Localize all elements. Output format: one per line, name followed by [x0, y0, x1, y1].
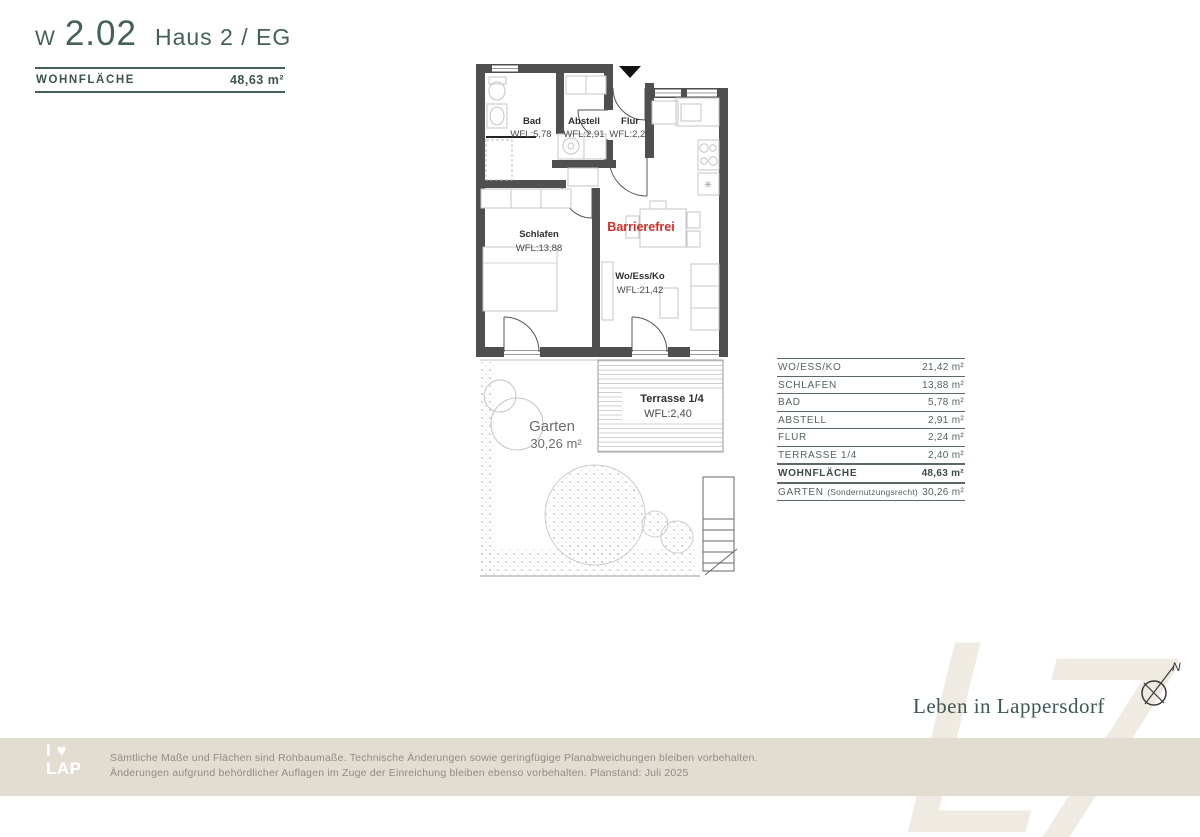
- area-table-row: WO/ESS/KO 21,42 m²: [777, 359, 965, 377]
- logo-line2: LAP: [46, 760, 82, 778]
- unit-prefix: W: [35, 27, 56, 51]
- stairs-icon: [703, 477, 737, 575]
- freezer-symbol: ✳: [704, 180, 712, 191]
- page: W 2.02 Haus 2 / EG WOHNFLÄCHE 48,63 m²: [0, 0, 1200, 837]
- area-table: WO/ESS/KO 21,42 m² SCHLAFEN 13,88 m² BAD…: [777, 358, 965, 501]
- disclaimer: Sämtliche Maße und Flächen sind Rohbauma…: [110, 751, 758, 781]
- wardrobe-icon: [481, 189, 571, 208]
- area-table-row-label: SCHLAFEN: [778, 380, 837, 391]
- garden-area-value: 30,26 m²: [530, 436, 582, 451]
- disclaimer-line2: Änderungen aufgrund behördlicher Auflage…: [110, 766, 758, 781]
- compass-icon: N: [1130, 655, 1190, 715]
- room-wfl-bad: WFL:5,78: [510, 129, 551, 140]
- area-table-row: TERRASSE 1/4 2,40 m²: [777, 447, 965, 466]
- room-label-woessko: Wo/Ess/Ko: [615, 271, 665, 282]
- floorplan: Garten 30,26 m² Terrasse 1/4 WFL:2,40: [455, 55, 745, 590]
- room-label-bad: Bad: [523, 116, 541, 127]
- room-label-abstell: Abstell: [568, 116, 600, 127]
- entrance-arrow-icon: [619, 66, 641, 78]
- area-table-row-value: 2,24 m²: [928, 432, 964, 443]
- shower-icon: [486, 140, 512, 180]
- page-title: W 2.02 Haus 2 / EG: [35, 14, 291, 54]
- building-label: Haus 2 / EG: [155, 24, 291, 51]
- room-label-schlafen: Schlafen: [519, 229, 559, 240]
- room-wfl-woessko: WFL:21,42: [617, 285, 663, 296]
- room-wfl-schlafen: WFL:13,88: [516, 243, 562, 254]
- sideboard-icon: [602, 262, 613, 320]
- area-table-row: GARTEN (Sondernutzungsrecht) 30,26 m²: [777, 484, 965, 502]
- area-table-row-label: FLUR: [778, 432, 807, 443]
- area-table-row-value: 30,26 m²: [922, 487, 964, 498]
- room-wfl-flur: WFL:2,24: [609, 129, 650, 140]
- logo-line1: I ♥: [46, 742, 82, 760]
- area-table-row-label: WOHNFLÄCHE: [778, 468, 857, 479]
- area-table-row-value: 5,78 m²: [928, 397, 964, 408]
- living-area-summary: WOHNFLÄCHE 48,63 m²: [35, 67, 285, 93]
- living-area-value: 48,63 m²: [230, 73, 284, 87]
- living-area-label: WOHNFLÄCHE: [36, 74, 135, 86]
- sofa-icon: [691, 264, 719, 330]
- terrace-area: Terrasse 1/4 WFL:2,40: [598, 360, 723, 452]
- terrace-wfl: WFL:2,40: [644, 408, 692, 420]
- barrier-free-label: Barrierefrei: [607, 220, 674, 234]
- area-table-row-value: 13,88 m²: [922, 380, 964, 391]
- wardrobe-niche-icon: [568, 168, 598, 186]
- i-love-lap-logo: I ♥ LAP: [46, 742, 82, 778]
- kitchen-sink-icon: [681, 104, 701, 121]
- area-table-row-label: TERRASSE 1/4: [778, 450, 857, 461]
- area-table-row-value: 2,40 m²: [928, 450, 964, 461]
- area-table-row-value: 48,63 m²: [922, 468, 964, 479]
- area-table-row-value: 2,91 m²: [928, 415, 964, 426]
- area-table-row-label: ABSTELL: [778, 415, 827, 426]
- area-table-row: ABSTELL 2,91 m²: [777, 412, 965, 430]
- unit-number: 2.02: [65, 14, 137, 54]
- disclaimer-line1: Sämtliche Maße und Flächen sind Rohbauma…: [110, 751, 758, 766]
- bed-icon: [483, 247, 557, 311]
- area-table-row: SCHLAFEN 13,88 m²: [777, 377, 965, 395]
- area-table-row-label: WO/ESS/KO: [778, 362, 842, 373]
- tagline: Leben in Lappersdorf: [913, 694, 1105, 719]
- compass-north-label: N: [1172, 660, 1181, 674]
- toilet-icon: [489, 77, 506, 84]
- area-table-row-label: GARTEN (Sondernutzungsrecht): [778, 487, 918, 498]
- area-table-row: FLUR 2,24 m²: [777, 429, 965, 447]
- area-table-row-label: BAD: [778, 397, 801, 408]
- area-table-row: BAD 5,78 m²: [777, 394, 965, 412]
- area-table-row: WOHNFLÄCHE 48,63 m²: [777, 465, 965, 484]
- room-label-flur: Flur: [621, 116, 639, 127]
- room-wfl-abstell: WFL:2,91: [563, 129, 604, 140]
- kitchen-fixtures: ✳: [652, 98, 719, 195]
- garden-label: Garten: [529, 418, 575, 435]
- area-table-row-value: 21,42 m²: [922, 362, 964, 373]
- terrace-label: Terrasse 1/4: [640, 393, 704, 405]
